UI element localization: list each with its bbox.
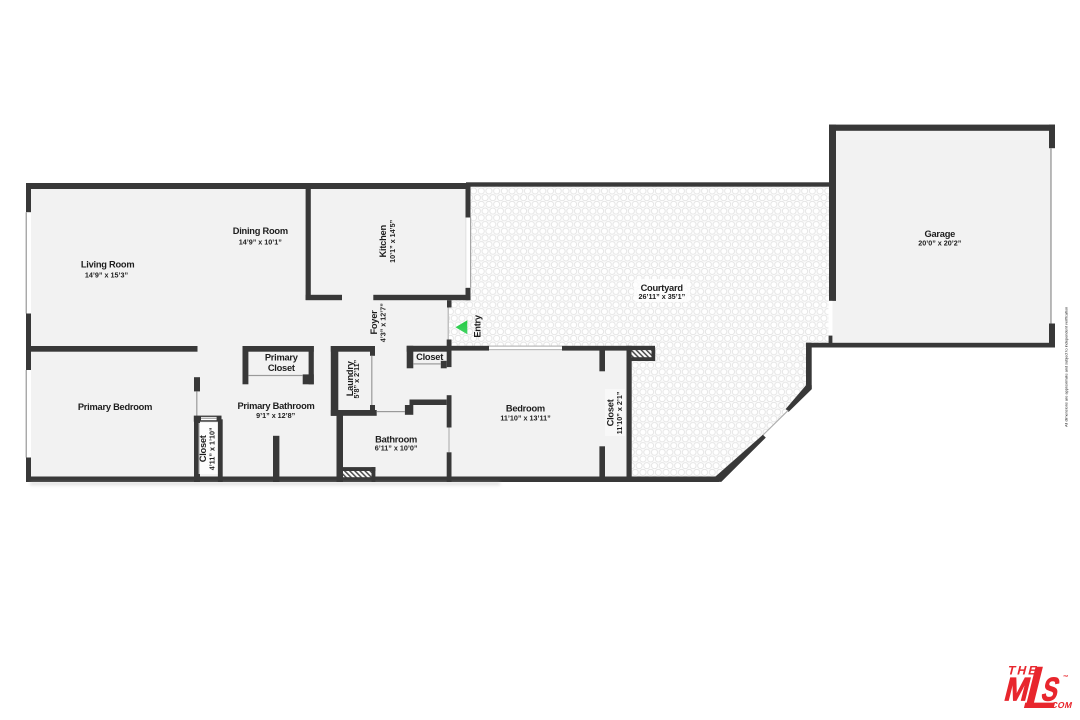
svg-text:9’1” x 12’8”: 9’1” x 12’8” [256,411,296,420]
svg-text:Primary: Primary [265,352,299,362]
svg-text:4’11” x 1’10”: 4’11” x 1’10” [208,427,217,470]
svg-text:11’10” x 2’1”: 11’10” x 2’1” [615,391,624,434]
svg-text:Primary Bedroom: Primary Bedroom [78,402,152,412]
svg-text:6’11” x 10’0”: 6’11” x 10’0” [375,444,418,453]
svg-text:Entry: Entry [472,314,482,338]
svg-text:4’3” x 12’7”: 4’3” x 12’7” [378,303,387,343]
svg-text:™: ™ [1062,675,1069,681]
svg-text:All dimensions are approximate: All dimensions are approximate and subje… [1064,307,1068,427]
svg-text:26’11” x 35’1”: 26’11” x 35’1” [639,292,686,301]
svg-text:5’8” x 2’11”: 5’8” x 2’11” [352,359,361,398]
svg-text:Foyer: Foyer [369,310,379,335]
svg-text:14’9” x 10’1”: 14’9” x 10’1” [239,237,283,246]
svg-text:Kitchen: Kitchen [378,225,388,258]
svg-text:20’0” x 20’2”: 20’0” x 20’2” [918,239,962,248]
svg-text:Closet: Closet [416,352,443,362]
svg-text:Dining Room: Dining Room [233,226,288,236]
svg-text:14’9” x 15’3”: 14’9” x 15’3” [85,271,129,280]
svg-text:Closet: Closet [606,399,616,426]
svg-text:Living Room: Living Room [81,259,135,269]
svg-text:Bedroom: Bedroom [506,404,545,414]
svg-text:Closet: Closet [198,435,208,462]
svg-text:Primary Bathroom: Primary Bathroom [237,401,314,411]
svg-text:.COM: .COM [1047,700,1073,710]
svg-text:10’1” x 14’5”: 10’1” x 14’5” [388,219,397,263]
svg-text:11’10” x 13’11”: 11’10” x 13’11” [500,414,551,423]
svg-text:Closet: Closet [268,363,295,373]
